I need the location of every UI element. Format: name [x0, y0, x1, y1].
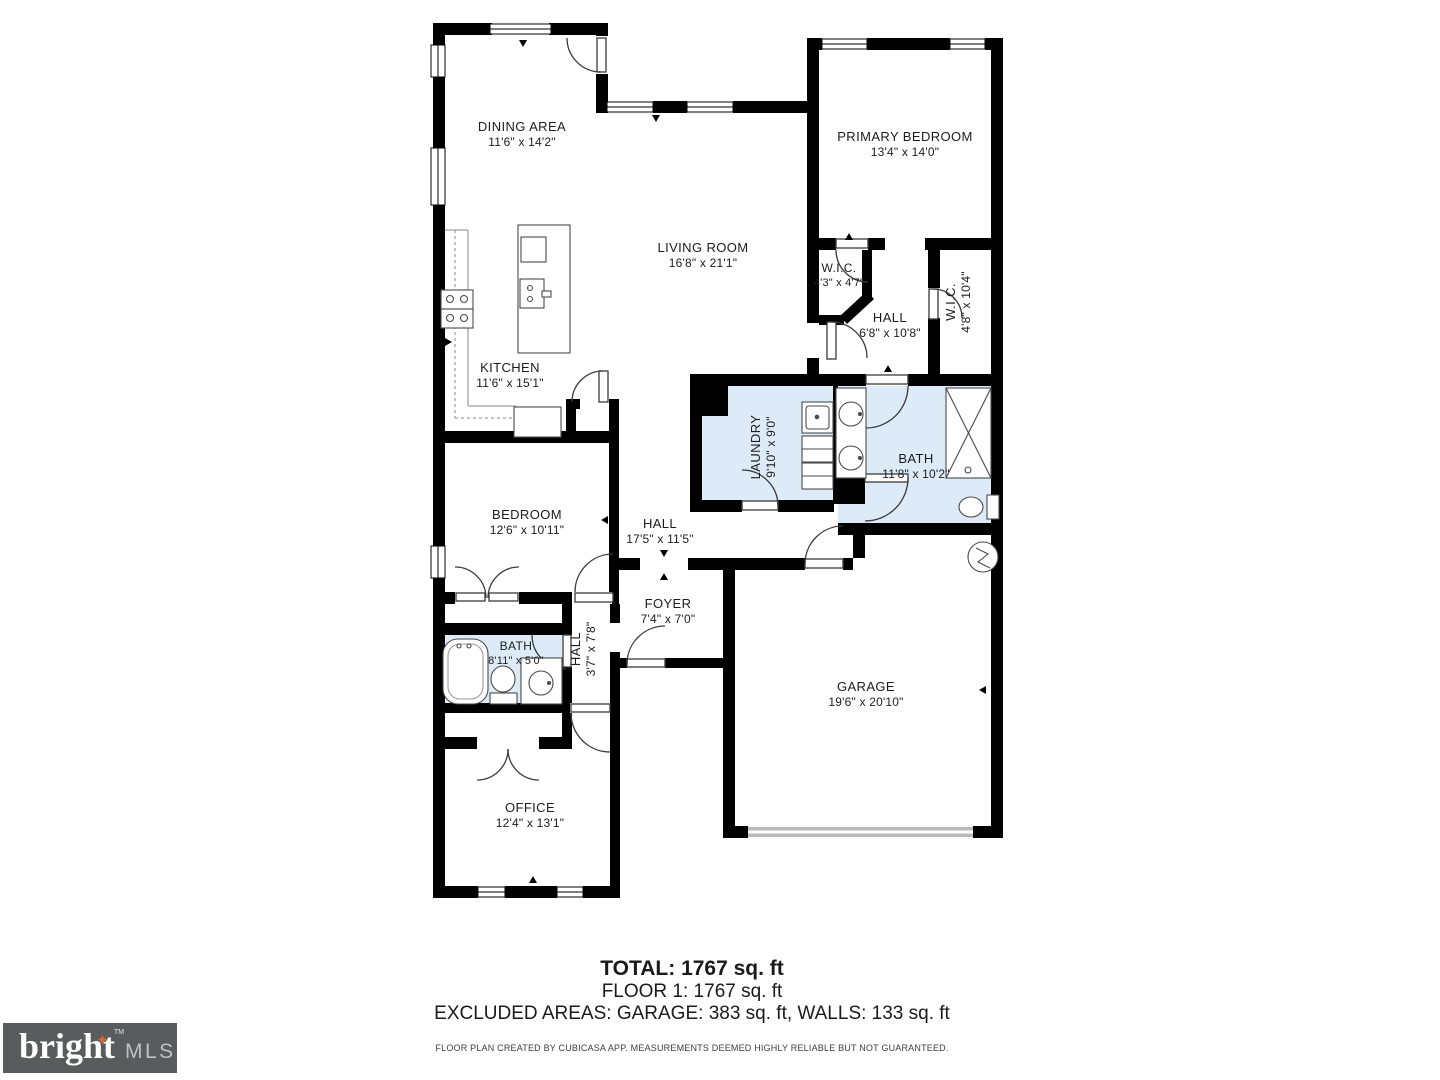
- room-label-primary-bedroom: PRIMARY BEDROOM13'4" x 14'0": [837, 130, 973, 160]
- floor-plan-page: DINING AREA11'6" x 14'2" PRIMARY BEDROOM…: [0, 0, 1440, 1080]
- floor-plan-drawing: [0, 0, 1440, 1080]
- room-label-laundry: LAUNDRY9'10" x 9'0": [749, 415, 779, 480]
- laundry-fixtures-icon: [802, 402, 833, 489]
- room-label-hall-2: HALL17'5" x 11'5": [626, 517, 694, 547]
- room-label-bath-2: BATH8'11" x 5'0": [488, 640, 544, 667]
- total-area-text: TOTAL: 1767 sq. ft: [600, 957, 784, 981]
- bright-mls-logo: bright ✦ TM MLS: [3, 1023, 177, 1073]
- room-label-wic-1: W.I.C.4'3" x 4'7": [814, 262, 864, 289]
- room-label-dining: DINING AREA11'6" x 14'2": [478, 120, 566, 150]
- room-label-hall-3: HALL3'7" x 7'8": [569, 622, 599, 677]
- room-label-garage: GARAGE19'6" x 20'10": [828, 680, 903, 710]
- excluded-areas-text: EXCLUDED AREAS: GARAGE: 383 sq. ft, WALL…: [434, 1003, 950, 1025]
- floor-area-text: FLOOR 1: 1767 sq. ft: [602, 981, 783, 1003]
- room-label-bedroom: BEDROOM12'6" x 10'11": [490, 508, 564, 538]
- room-label-wic-2: W.I.C.4'8" x 10'4": [944, 271, 974, 333]
- logo-star-icon: ✦: [96, 1031, 109, 1049]
- fridge-icon: [514, 407, 561, 437]
- logo-suffix-text: MLS: [125, 1040, 176, 1064]
- kitchen-island-icon: [518, 225, 570, 353]
- range-icon: [441, 290, 473, 328]
- room-label-kitchen: KITCHEN11'6" x 15'1": [476, 361, 544, 391]
- room-label-foyer: FOYER7'4" x 7'0": [641, 597, 696, 627]
- logo-trademark: TM: [114, 1029, 124, 1036]
- room-label-living-room: LIVING ROOM16'8" x 21'1": [657, 241, 748, 271]
- room-label-hall-1: HALL6'8" x 10'8": [859, 311, 921, 341]
- disclaimer-text: FLOOR PLAN CREATED BY CUBICASA APP. MEAS…: [435, 1043, 948, 1053]
- water-heater-icon: [968, 542, 998, 572]
- room-label-office: OFFICE12'4" x 13'1": [496, 801, 564, 831]
- room-label-bath-1: BATH11'8" x 10'2": [882, 452, 950, 482]
- garage-door: [748, 826, 973, 838]
